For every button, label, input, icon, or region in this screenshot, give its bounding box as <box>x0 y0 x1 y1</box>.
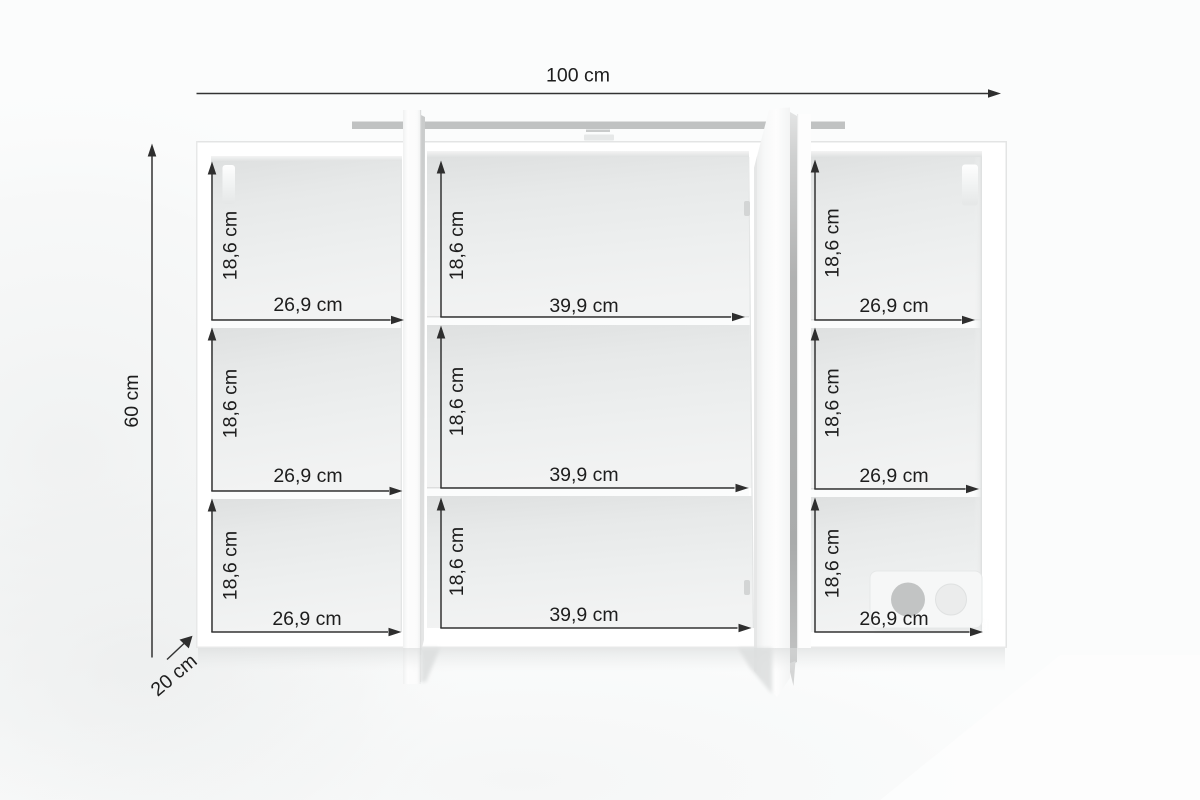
svg-text:18,6 cm: 18,6 cm <box>822 529 844 598</box>
svg-text:18,6 cm: 18,6 cm <box>446 527 468 596</box>
svg-text:26,9 cm: 26,9 cm <box>859 465 928 487</box>
svg-text:26,9 cm: 26,9 cm <box>273 294 342 316</box>
svg-text:39,9 cm: 39,9 cm <box>549 295 618 317</box>
svg-text:39,9 cm: 39,9 cm <box>549 604 618 626</box>
svg-text:18,6 cm: 18,6 cm <box>220 531 242 600</box>
svg-text:18,6 cm: 18,6 cm <box>822 208 844 277</box>
svg-text:26,9 cm: 26,9 cm <box>859 608 928 630</box>
svg-text:60 cm: 60 cm <box>121 374 143 427</box>
svg-text:18,6 cm: 18,6 cm <box>822 368 844 437</box>
svg-text:18,6 cm: 18,6 cm <box>220 369 242 438</box>
svg-text:18,6 cm: 18,6 cm <box>446 367 468 436</box>
svg-text:26,9 cm: 26,9 cm <box>272 608 341 630</box>
svg-text:26,9 cm: 26,9 cm <box>859 295 928 317</box>
svg-text:26,9 cm: 26,9 cm <box>273 465 342 487</box>
svg-text:18,6 cm: 18,6 cm <box>220 211 242 280</box>
svg-text:100 cm: 100 cm <box>546 65 610 87</box>
svg-text:39,9 cm: 39,9 cm <box>549 464 618 486</box>
svg-text:18,6 cm: 18,6 cm <box>446 211 468 280</box>
